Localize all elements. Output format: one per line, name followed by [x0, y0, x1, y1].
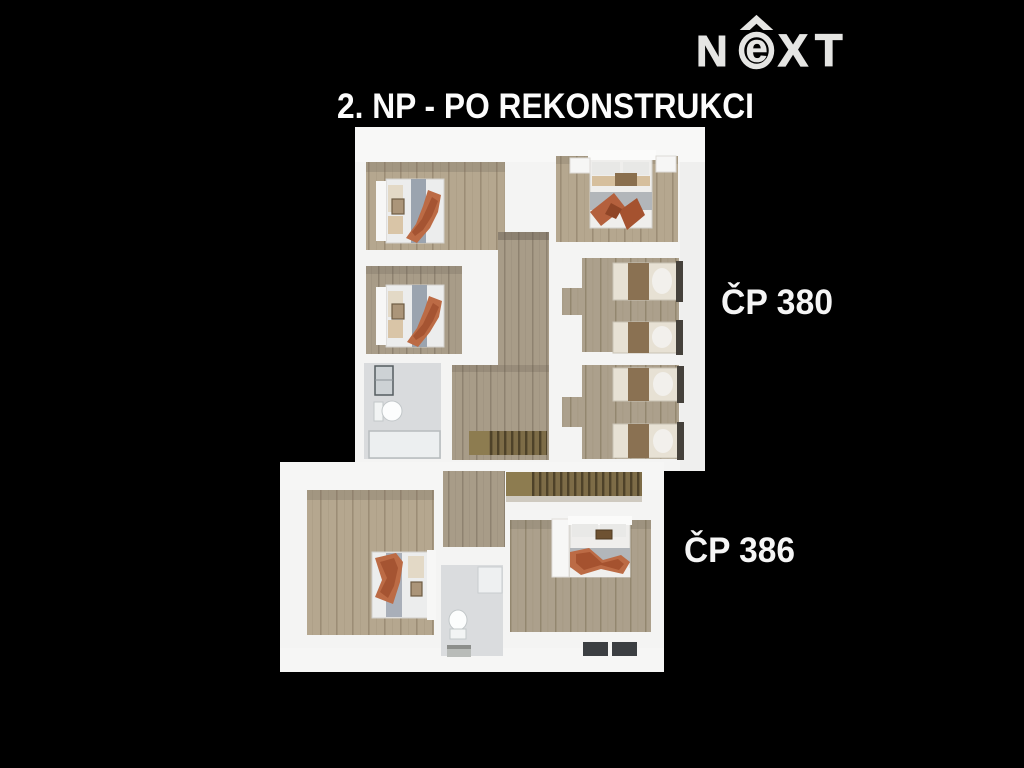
svg-text:T: T — [815, 25, 843, 76]
svg-text:2. NP - PO REKONSTRUKCI: 2. NP - PO REKONSTRUKCI — [337, 87, 754, 126]
svg-text:ČP 386: ČP 386 — [684, 530, 795, 570]
svg-text:N: N — [696, 27, 728, 76]
svg-text:X: X — [778, 25, 808, 76]
svg-text:ČP 380: ČP 380 — [721, 282, 833, 322]
svg-text:e: e — [746, 27, 768, 71]
